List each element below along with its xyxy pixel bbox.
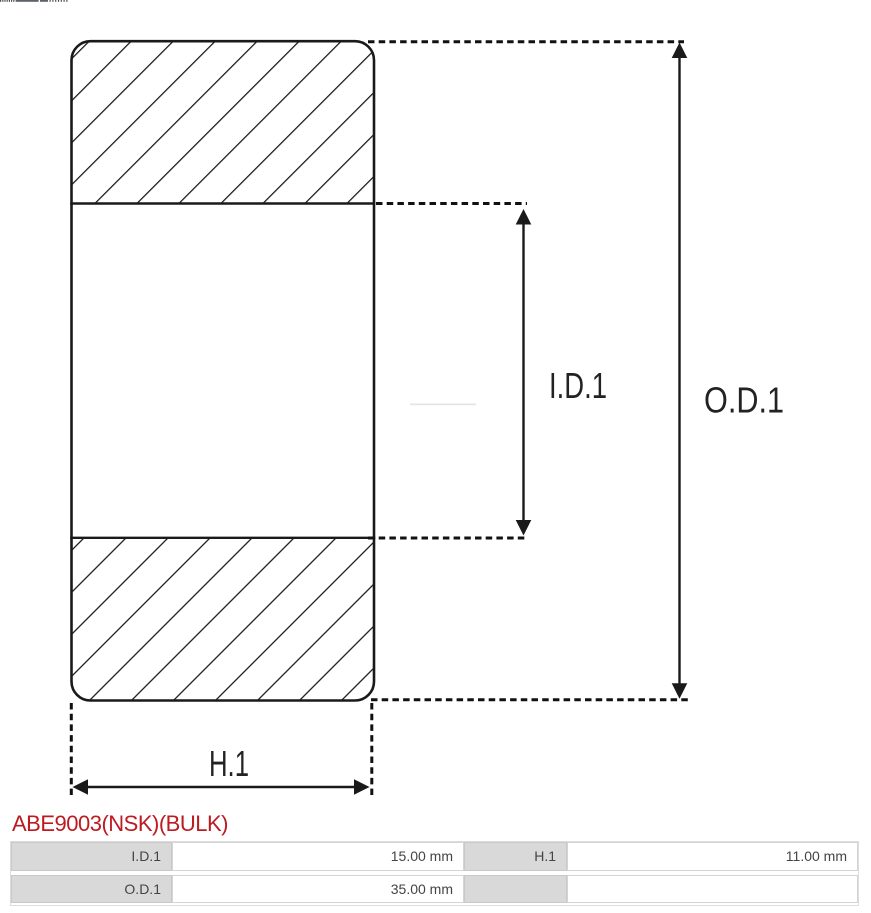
- svg-text:O.D.1: O.D.1: [704, 380, 784, 421]
- svg-text:H.1: H.1: [209, 743, 249, 784]
- svg-text:I.D.1: I.D.1: [549, 365, 607, 406]
